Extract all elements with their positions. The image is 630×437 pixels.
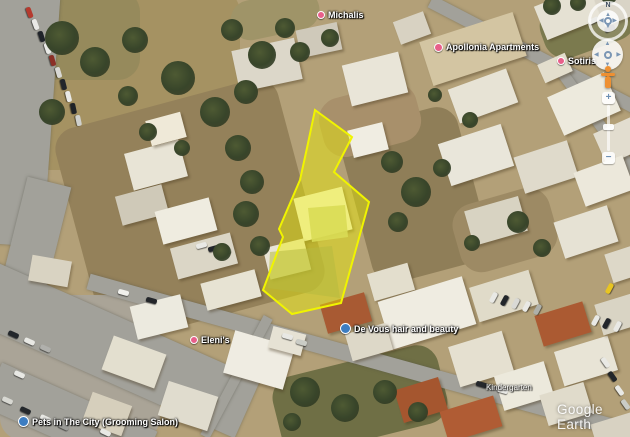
look-right-arrow-icon[interactable]: ▶ [612,18,617,24]
place-label[interactable]: Eleni's [190,335,230,345]
move-left-arrow-icon[interactable]: ◀ [594,52,599,58]
place-marker-icon[interactable] [317,11,325,19]
place-label[interactable]: Pets in The City (Grooming Salon) [18,416,178,427]
pegman-street-view-icon[interactable] [601,66,615,90]
look-joystick[interactable]: N ▲ ▼ ◀ ▶ [588,1,628,41]
look-center-eye-icon[interactable] [604,17,612,25]
place-marker-icon[interactable] [434,43,443,52]
pegman-body [605,76,611,88]
place-label-text: Michalis [328,10,364,20]
move-center-icon[interactable] [604,51,612,59]
place-marker-icon[interactable] [190,336,198,344]
google-earth-watermark: Google Earth [557,402,630,432]
look-joystick-center[interactable]: ▲ ▼ ◀ ▶ [597,10,619,32]
look-left-arrow-icon[interactable]: ◀ [599,18,604,24]
google-earth-viewport: MichalisApollonia ApartmentsSotirisEleni… [0,0,630,437]
zoom-out-button[interactable]: − [602,152,615,164]
zoom-slider-handle[interactable] [603,124,614,130]
place-marker-icon[interactable] [18,416,29,427]
place-label[interactable]: De Vous hair and beauty [340,323,458,334]
move-right-arrow-icon[interactable]: ▶ [616,52,621,58]
parcel-boundary-overlay[interactable] [0,0,630,437]
place-label-text: Pets in The City (Grooming Salon) [32,417,178,427]
place-label-text: Eleni's [201,335,230,345]
pegman-head [605,66,611,72]
place-label[interactable]: Michalis [317,10,364,20]
place-label[interactable]: Apollonia Apartments [434,42,539,52]
place-label-text: Kindergarten [486,383,532,392]
parcel-inner-building[interactable] [308,205,348,242]
place-marker-icon[interactable] [340,323,351,334]
place-label[interactable]: Kindergarten [486,383,532,392]
place-label[interactable]: Sotiris [557,56,596,66]
place-marker-icon[interactable] [557,57,565,65]
place-label-text: Apollonia Apartments [446,42,539,52]
place-label-text: De Vous hair and beauty [354,324,458,334]
north-indicator[interactable]: N [605,2,610,9]
zoom-in-button[interactable]: + [602,92,615,104]
move-up-arrow-icon[interactable]: ▲ [605,41,611,47]
